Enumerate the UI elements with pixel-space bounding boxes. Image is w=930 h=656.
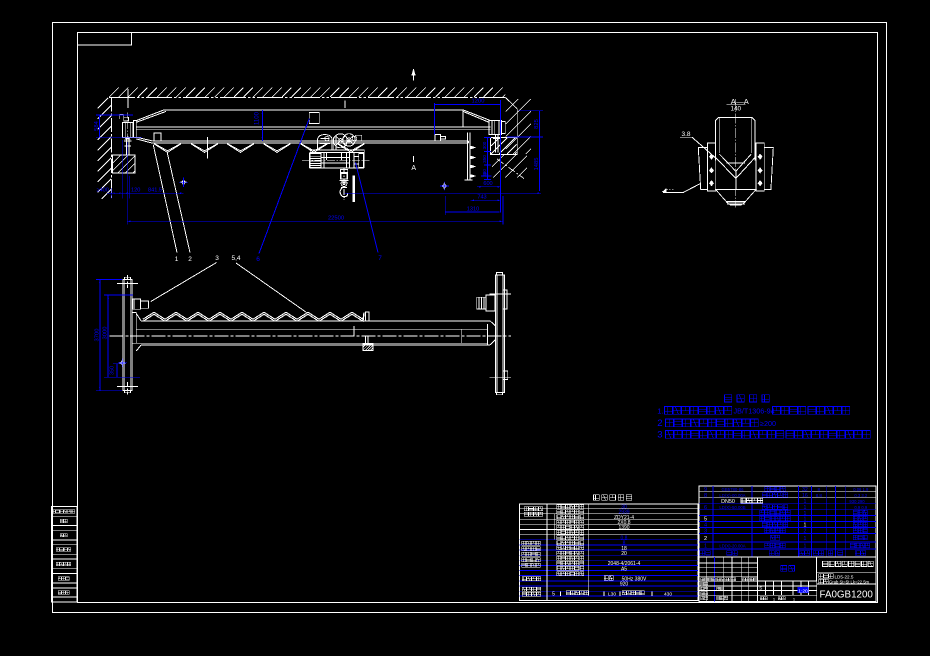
svg-text:1: 1 (803, 499, 806, 505)
svg-text:0.3 3.2: 0.3 3.2 (854, 493, 867, 498)
svg-text:600: 600 (483, 181, 492, 187)
svg-text:1100: 1100 (255, 111, 261, 125)
svg-text:A: A (411, 165, 416, 172)
svg-text:1: 1 (803, 544, 806, 550)
svg-text:2: 2 (704, 536, 707, 542)
svg-text:1390: 1390 (618, 525, 629, 531)
svg-text:350: 350 (482, 155, 487, 163)
svg-text:0.06 1.9: 0.06 1.9 (853, 487, 869, 492)
svg-text:22500: 22500 (328, 215, 344, 221)
svg-text:LD(X)-20.00A: LD(X)-20.00A (719, 544, 745, 549)
svg-text:2: 2 (803, 529, 806, 535)
svg-text:930 290: 930 290 (849, 499, 865, 504)
svg-text:7: 7 (378, 255, 382, 262)
svg-text:GB5780-86: GB5780-86 (722, 487, 745, 492)
svg-text:8: 8 (704, 493, 707, 499)
svg-text:6: 6 (256, 256, 260, 263)
svg-text:1: 1 (704, 544, 707, 550)
svg-text:JB/T1306-94: JB/T1306-94 (734, 407, 775, 416)
svg-text:6: 6 (704, 505, 707, 511)
svg-text:3: 3 (704, 529, 707, 535)
svg-text:5,4: 5,4 (231, 255, 240, 262)
svg-text:LD(X)-00.00A: LD(X)-00.00A (719, 493, 745, 498)
svg-text:A5: A5 (621, 566, 627, 572)
svg-text:920: 920 (620, 582, 629, 588)
svg-text:1: 1 (175, 256, 179, 263)
svg-text:5: 5 (552, 591, 555, 597)
svg-text:1: 1 (803, 536, 806, 542)
svg-text:≥400: ≥400 (97, 188, 109, 194)
svg-text:FA0GB1200: FA0GB1200 (820, 590, 874, 601)
svg-text:3: 3 (215, 255, 219, 262)
svg-text:3: 3 (657, 430, 662, 441)
svg-text:L30: L30 (608, 591, 616, 597)
svg-text:8.8: 8.8 (816, 493, 823, 498)
svg-text:S: S (759, 586, 762, 591)
svg-text:0.9 0.9: 0.9 0.9 (854, 505, 867, 510)
svg-text:1.: 1. (657, 407, 663, 416)
svg-text:1310: 1310 (467, 206, 479, 212)
svg-text:2: 2 (657, 418, 662, 429)
svg-text:1200: 1200 (472, 99, 485, 105)
svg-text:825: 825 (534, 119, 540, 129)
svg-text:8: 8 (818, 487, 821, 492)
svg-text:1:20: 1:20 (798, 589, 808, 595)
svg-text:DN50: DN50 (721, 499, 735, 505)
svg-text:≥200: ≥200 (760, 419, 776, 428)
svg-text:584: 584 (94, 120, 100, 130)
svg-text:300: 300 (482, 141, 487, 149)
svg-text:LD(X)-50.00B: LD(X)-50.00B (719, 505, 745, 510)
svg-text:16: 16 (802, 493, 808, 499)
svg-text:841.5: 841.5 (148, 188, 162, 194)
svg-text:3700: 3700 (94, 329, 100, 342)
svg-text:1485: 1485 (534, 158, 540, 171)
svg-text:350: 350 (110, 366, 116, 375)
svg-text:430: 430 (664, 591, 672, 597)
svg-text:743: 743 (477, 195, 486, 201)
svg-text:3000: 3000 (103, 327, 109, 340)
svg-text:20: 20 (621, 551, 627, 557)
svg-text:2: 2 (188, 256, 192, 263)
svg-text:120: 120 (131, 188, 140, 194)
